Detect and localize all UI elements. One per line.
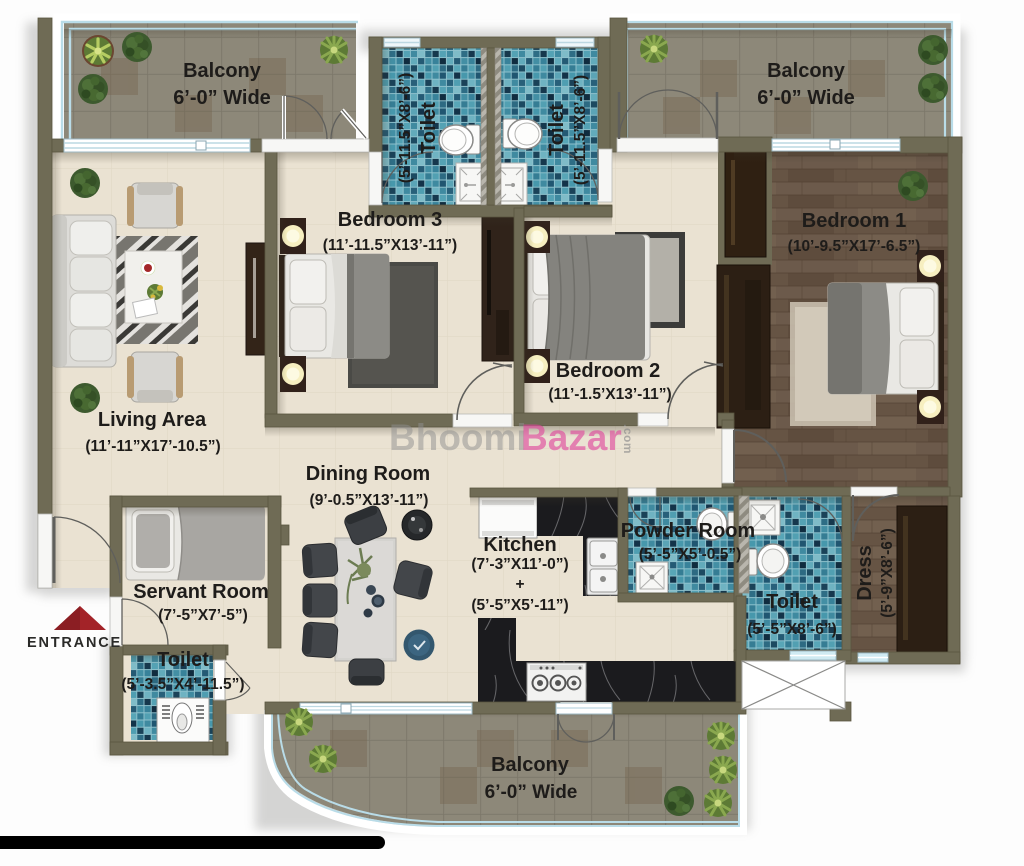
svg-text:Toilet: Toilet [766, 591, 818, 613]
svg-text:(9’-0.5”X13’-11”): (9’-0.5”X13’-11”) [310, 492, 429, 509]
svg-text:Dress: Dress [854, 545, 876, 601]
svg-text:Living Area: Living Area [98, 409, 207, 431]
svg-text:(11’-11.5”X13’-11”): (11’-11.5”X13’-11”) [323, 237, 457, 254]
svg-text:Toilet: Toilet [546, 104, 568, 156]
svg-text:+: + [515, 576, 524, 593]
svg-text:Servant Room: Servant Room [133, 581, 269, 603]
svg-text:Bazar: Bazar [521, 417, 622, 458]
svg-text:(5’-5”X5’-11”): (5’-5”X5’-11”) [471, 597, 568, 614]
svg-text:Balcony: Balcony [767, 60, 846, 82]
svg-text:Balcony: Balcony [183, 60, 262, 82]
svg-text:Bedroom 2: Bedroom 2 [556, 360, 660, 382]
svg-text:Bedroom 1: Bedroom 1 [802, 210, 906, 232]
svg-text:6’-0” Wide: 6’-0” Wide [485, 782, 578, 803]
svg-text:(11’-1.5’X13’-11”): (11’-1.5’X13’-11”) [548, 386, 671, 403]
svg-text:(5’-11.5”X8’-6”): (5’-11.5”X8’-6”) [572, 75, 589, 185]
svg-text:.com: .com [621, 424, 635, 454]
svg-text:Powder Room: Powder Room [621, 520, 755, 542]
svg-text:(7’-3”X11’-0”): (7’-3”X11’-0”) [471, 556, 568, 573]
svg-text:Dining Room: Dining Room [306, 463, 430, 485]
svg-text:Kitchen: Kitchen [483, 534, 556, 556]
svg-text:6’-0” Wide: 6’-0” Wide [173, 87, 271, 109]
svg-text:(5’-5”X5’-0.5”): (5’-5”X5’-0.5”) [639, 546, 742, 563]
svg-text:(11’-11”X17’-10.5”): (11’-11”X17’-10.5”) [85, 438, 220, 455]
svg-text:Toilet: Toilet [418, 102, 440, 154]
svg-text:(10’-9.5”X17’-6.5”): (10’-9.5”X17’-6.5”) [788, 238, 921, 255]
svg-text:(5’-9”X8’-6”): (5’-9”X8’-6”) [879, 528, 896, 618]
svg-text:(5’-5”X8’-6”): (5’-5”X8’-6”) [747, 621, 837, 638]
svg-text:ENTRANCE: ENTRANCE [27, 635, 122, 651]
svg-text:Bedroom 3: Bedroom 3 [338, 209, 442, 231]
svg-text:(7’-5”X7’-5”): (7’-5”X7’-5”) [158, 607, 248, 624]
svg-text:(5’-11.5”X8’-6”): (5’-11.5”X8’-6”) [397, 73, 414, 183]
svg-text:Toilet: Toilet [157, 649, 209, 671]
svg-text:Balcony: Balcony [491, 754, 570, 776]
svg-text:Bhoomi: Bhoomi [389, 417, 527, 458]
svg-text:(5’-3.5”X4’-11.5”): (5’-3.5”X4’-11.5”) [121, 676, 244, 693]
svg-text:6’-0” Wide: 6’-0” Wide [757, 87, 855, 109]
